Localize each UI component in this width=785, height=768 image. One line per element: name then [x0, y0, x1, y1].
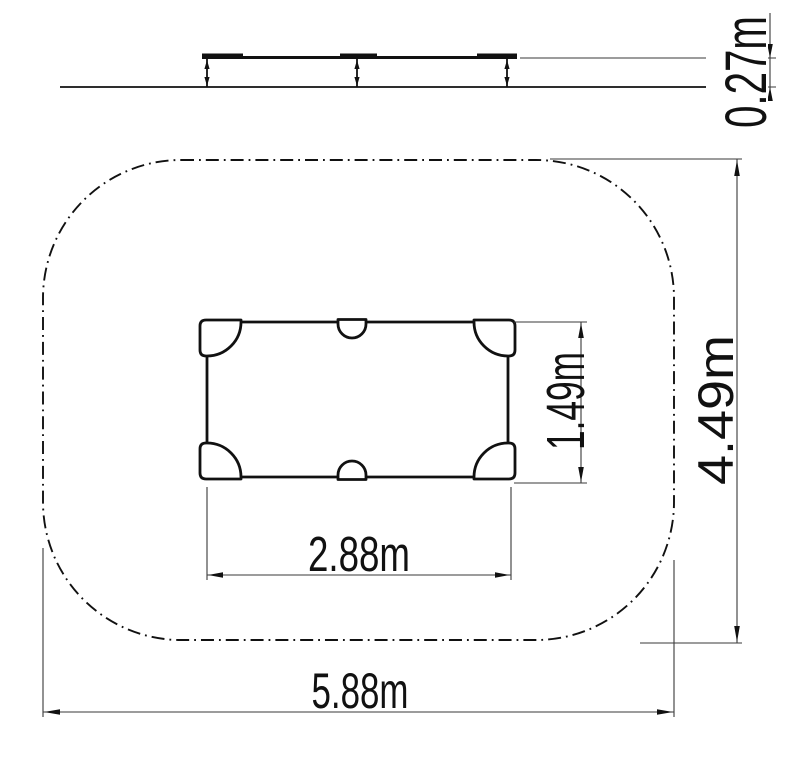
mid-post-pad-bottom — [338, 461, 366, 480]
arrowhead — [734, 160, 740, 176]
arrowhead — [657, 709, 673, 715]
equipment-depth-label: 1.49m — [536, 352, 596, 450]
equipment-outline — [207, 322, 508, 477]
arrowhead — [734, 626, 740, 642]
corner-post-pad-top-left — [200, 320, 241, 356]
equipment-width-label: 2.88m — [308, 528, 410, 582]
plan-view: 1.49m 2.88m 4.49m 5.88m — [43, 159, 744, 719]
safety-zone-width-label: 5.88m — [312, 663, 409, 719]
arrowhead — [495, 572, 510, 578]
dimension-equipment-width: 2.88m — [207, 487, 511, 582]
arrowhead — [578, 323, 584, 338]
arrowhead — [578, 467, 584, 482]
dimension-platform-height: 0.27m — [520, 12, 779, 130]
arrowhead — [208, 572, 223, 578]
corner-post-pad-bottom-right — [474, 443, 515, 479]
dimension-drawing: 0.27m 1.49m — [0, 0, 785, 768]
drawing-canvas: 0.27m 1.49m — [0, 0, 785, 768]
corner-post-pad-bottom-left — [200, 443, 241, 479]
platform-height-label: 0.27m — [714, 16, 779, 128]
safety-zone-depth-label: 4.49m — [688, 335, 744, 485]
mid-post-pad-top — [338, 320, 366, 339]
side-view: 0.27m — [60, 12, 779, 130]
corner-post-pad-top-right — [474, 320, 515, 356]
dimension-equipment-depth: 1.49m — [514, 322, 596, 483]
arrowhead — [44, 709, 60, 715]
